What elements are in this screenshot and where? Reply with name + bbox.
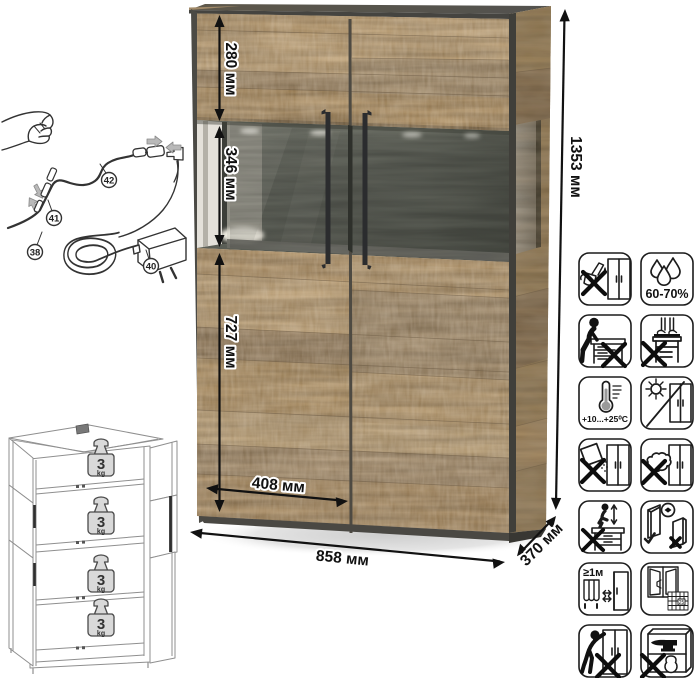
svg-text:40: 40: [146, 262, 157, 273]
svg-text:60-70%: 60-70%: [645, 287, 688, 301]
svg-text:727 мм: 727 мм: [222, 315, 239, 368]
svg-text:346 мм: 346 мм: [222, 147, 239, 200]
svg-text:25: 25: [679, 600, 685, 606]
svg-text:≥1м: ≥1м: [583, 567, 603, 579]
svg-text:41: 41: [49, 214, 60, 225]
svg-text:38: 38: [30, 248, 41, 259]
svg-text:+10...+25⁰C: +10...+25⁰C: [582, 414, 628, 424]
svg-text:1353 мм: 1353 мм: [567, 136, 584, 198]
svg-text:42: 42: [104, 176, 115, 187]
svg-text:kg: kg: [97, 471, 105, 478]
svg-text:280 мм: 280 мм: [222, 42, 239, 95]
